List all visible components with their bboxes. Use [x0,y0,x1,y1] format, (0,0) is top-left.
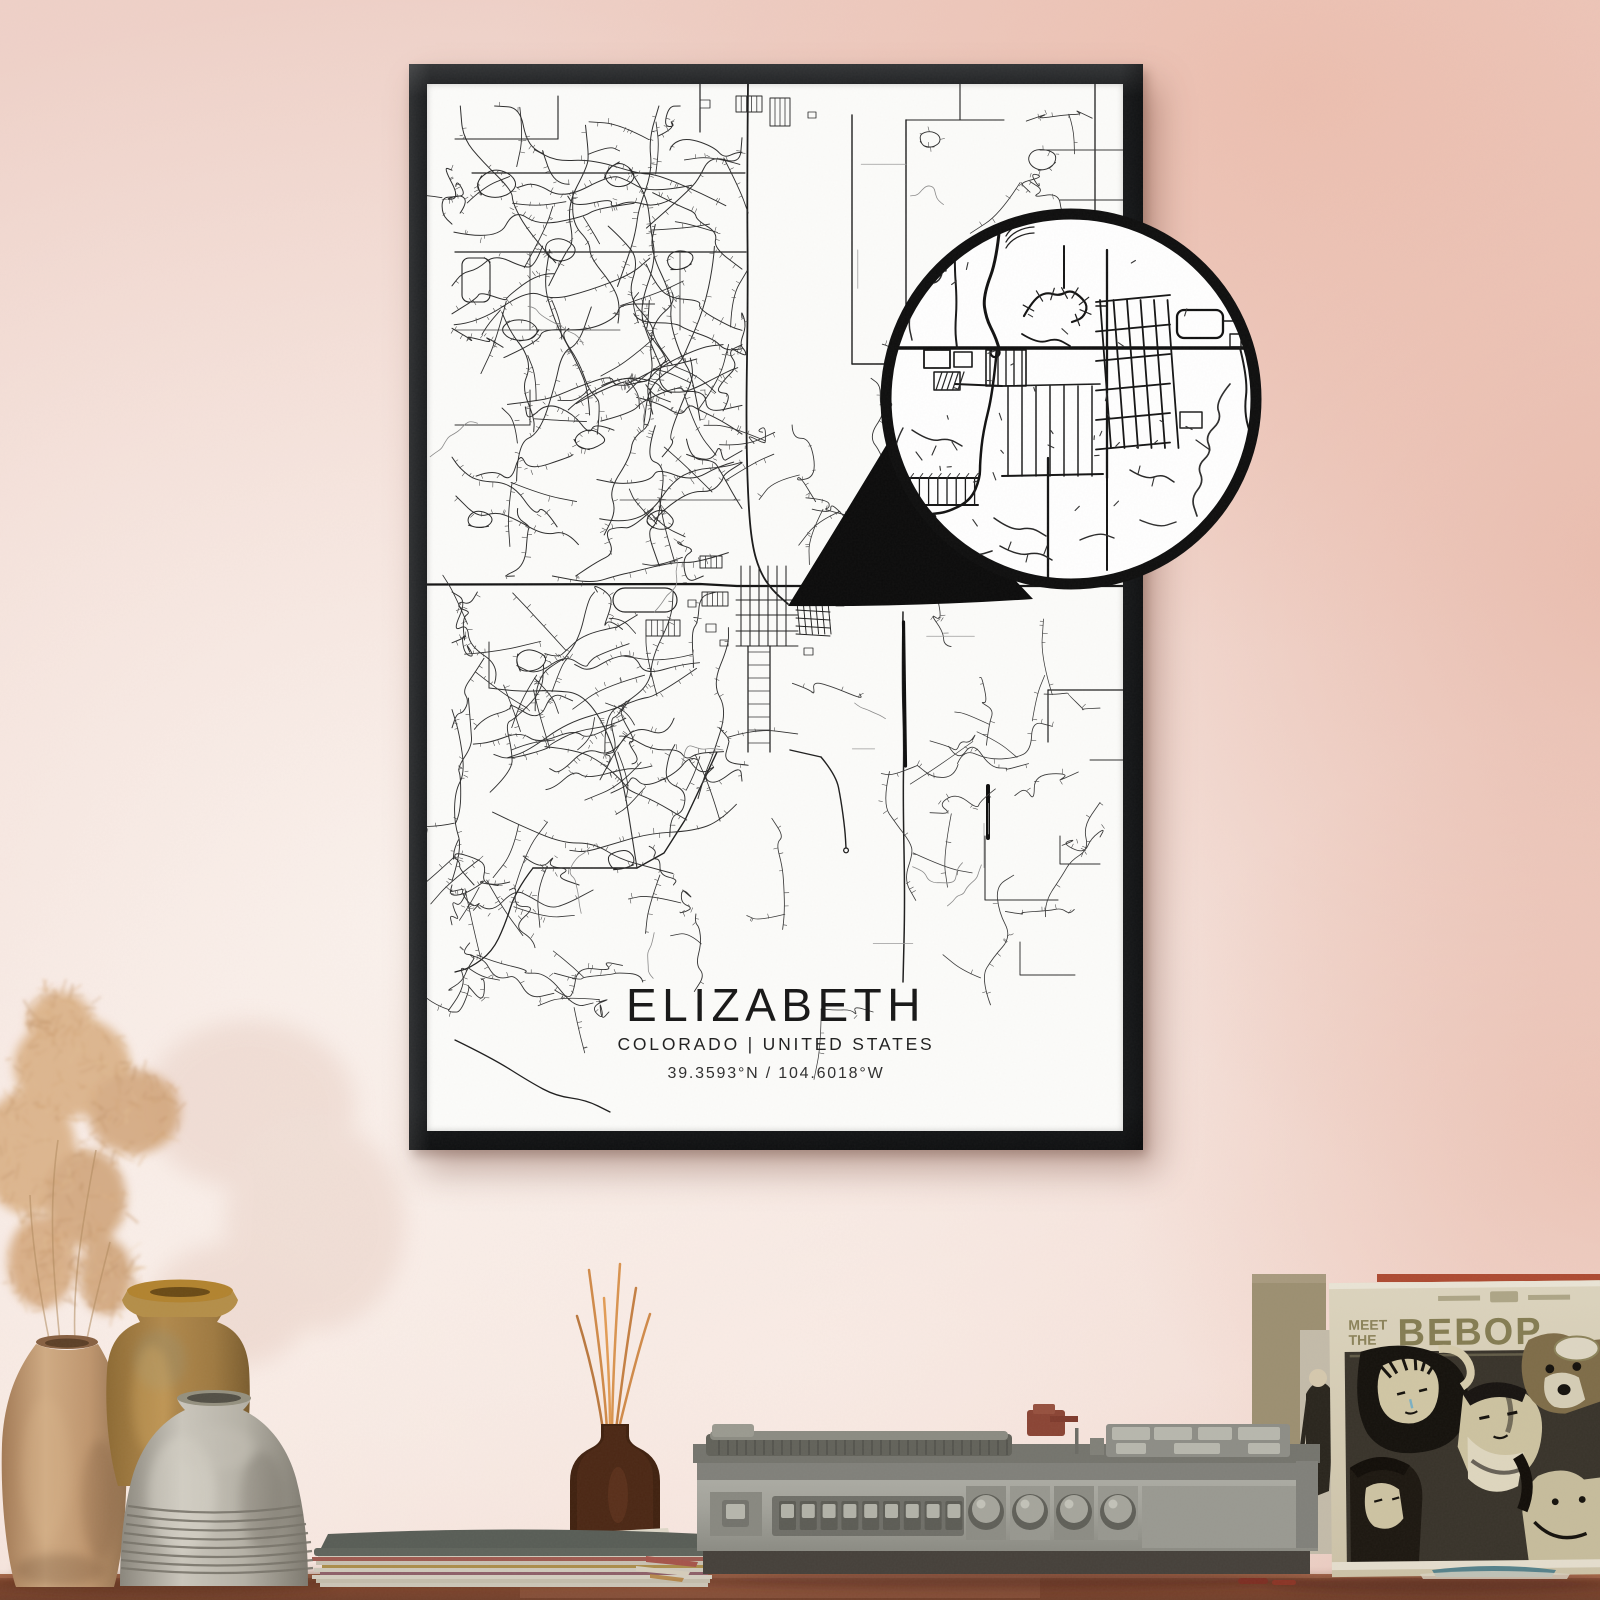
svg-text:ELIZABETH: ELIZABETH [626,979,926,1031]
svg-text:COLORADO | UNITED STATES: COLORADO | UNITED STATES [617,1034,934,1054]
svg-text:39.3593°N / 104.6018°W: 39.3593°N / 104.6018°W [668,1065,885,1082]
